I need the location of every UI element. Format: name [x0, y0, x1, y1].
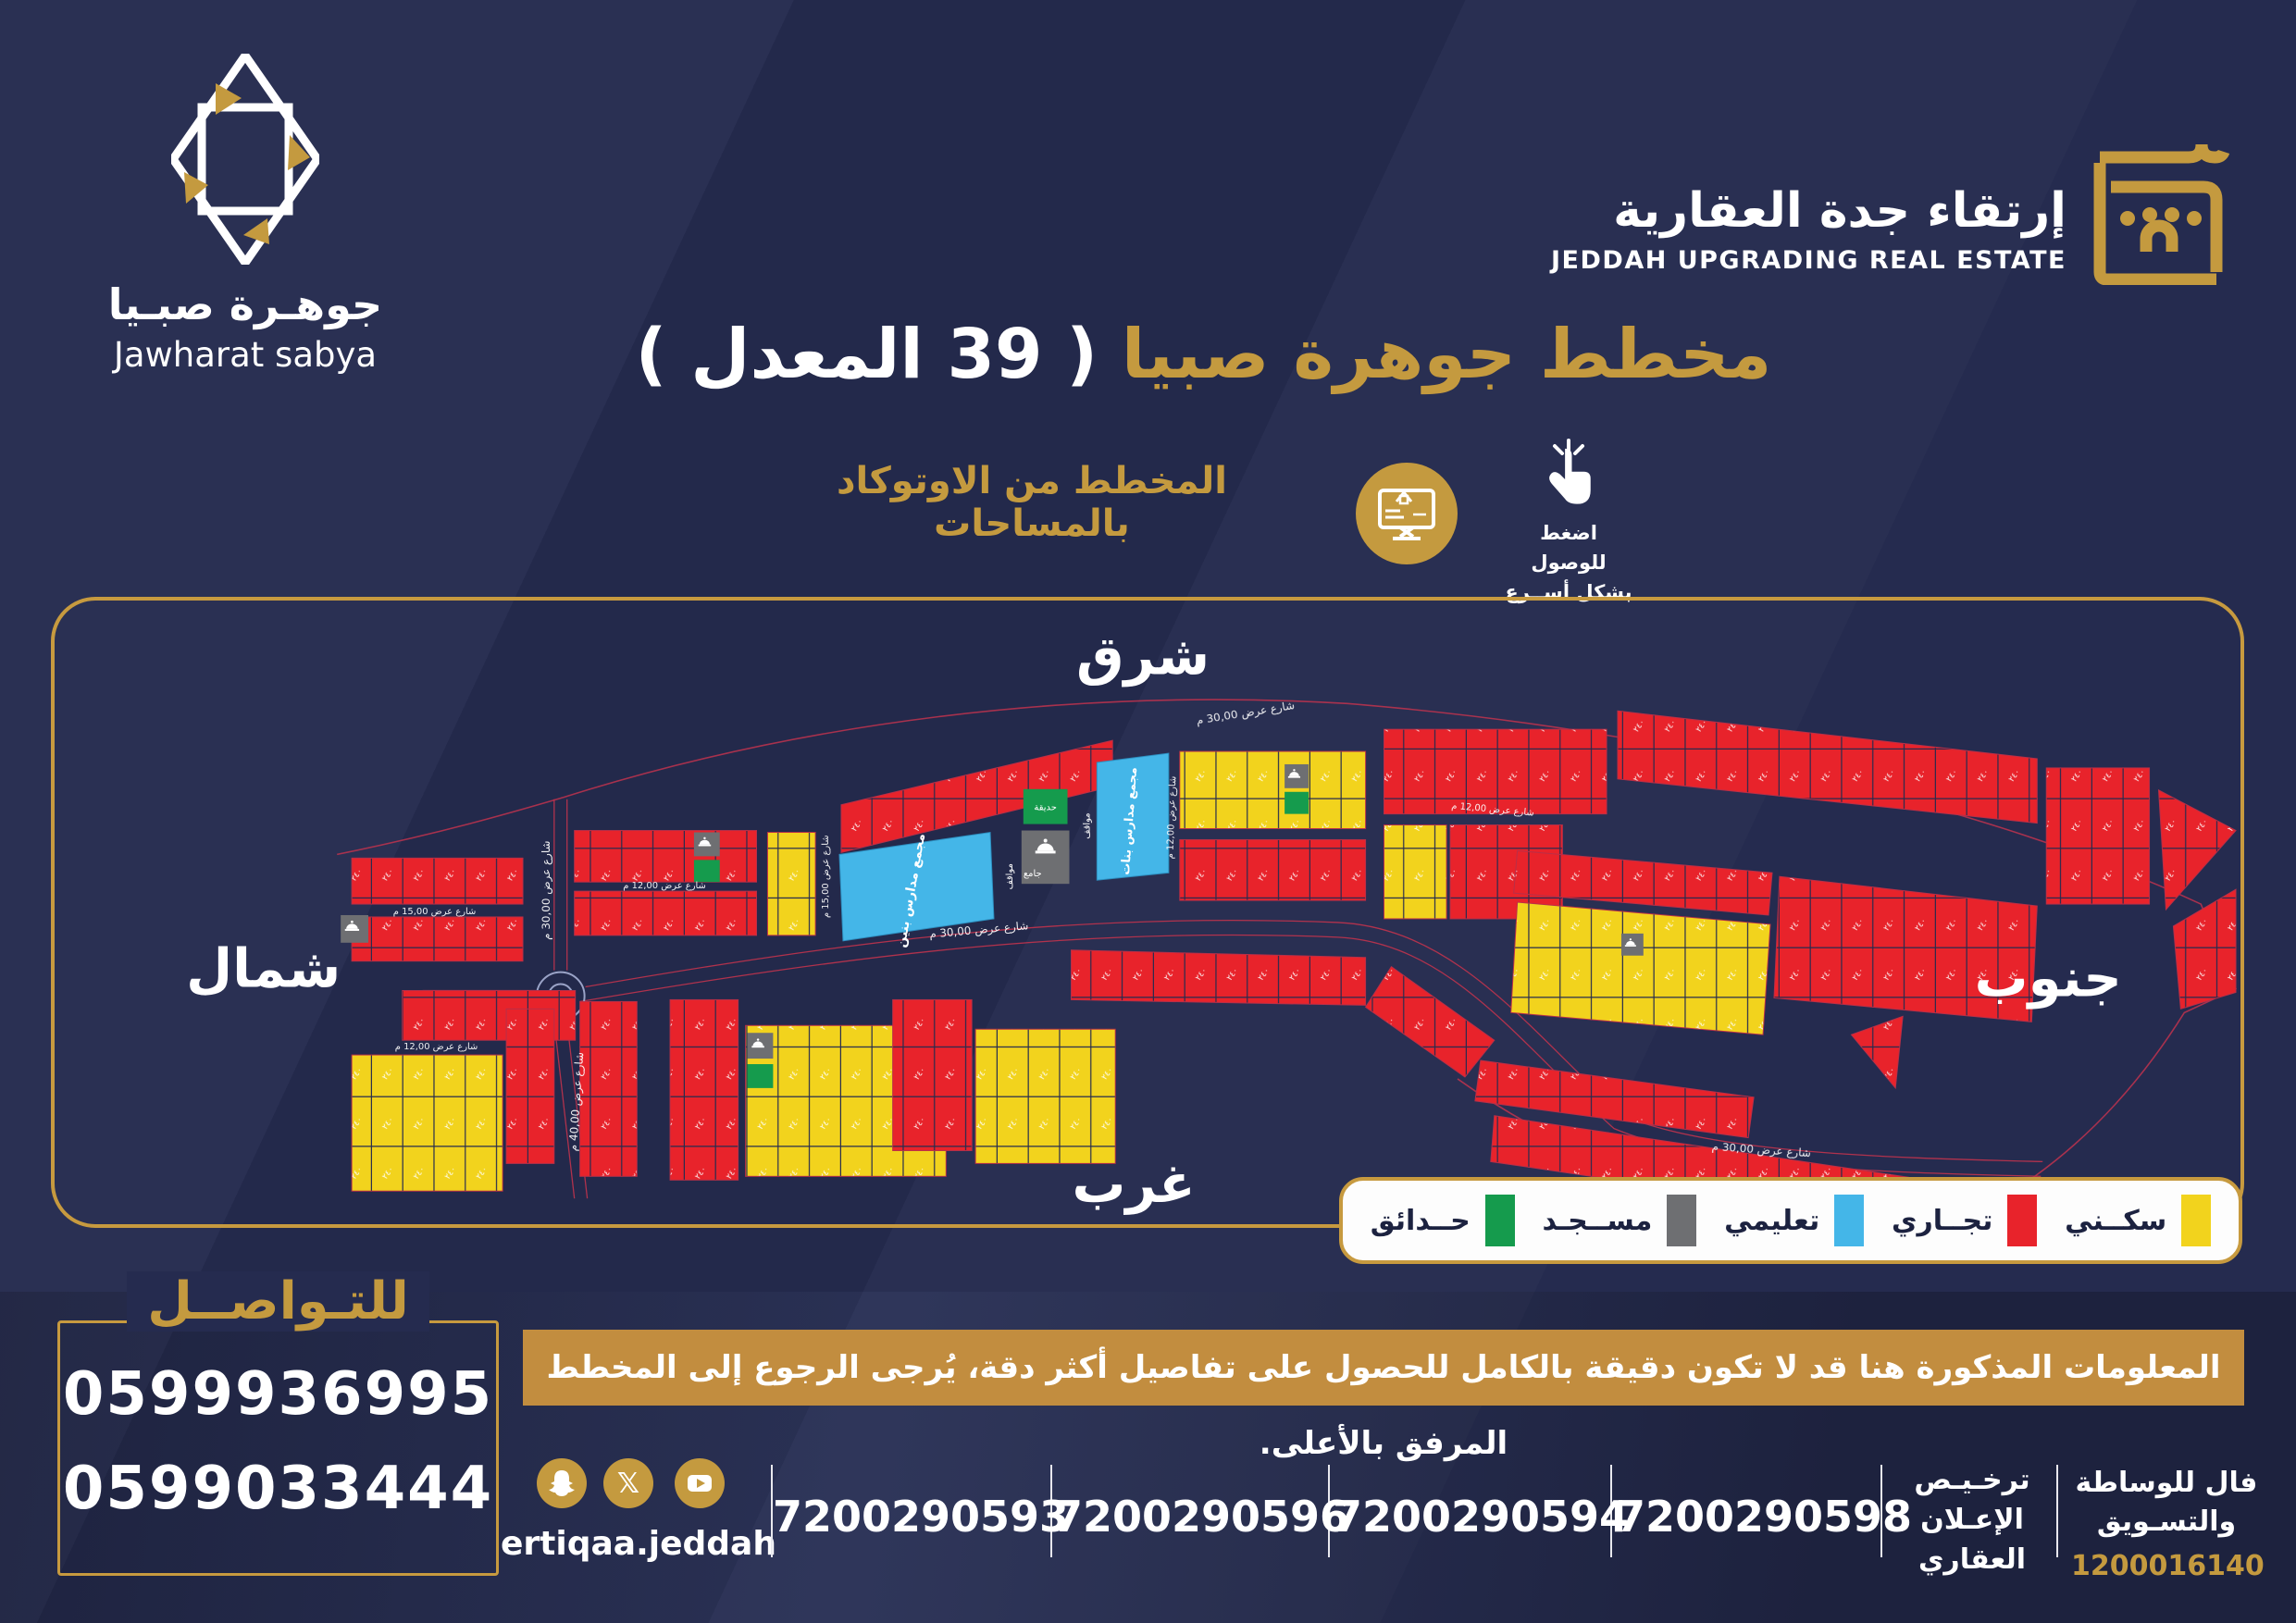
- page-subtitle: المخطط من الاوتوكاد بالمساحات: [754, 460, 1309, 545]
- agency-logo-icon: [2092, 130, 2231, 285]
- direction-north: شمال: [186, 937, 341, 1000]
- divider: [2056, 1465, 2058, 1557]
- svg-text:شارع عرض 30,00 م: شارع عرض 30,00 م: [1196, 699, 1296, 728]
- contact-title: للتـواصــل: [57, 1271, 499, 1332]
- fal-license-number: 1200016140: [2071, 1547, 2262, 1586]
- license-number-4: 7200290598: [1616, 1492, 1893, 1542]
- contact-box: [57, 1320, 499, 1576]
- park-label: حديقة: [1034, 803, 1056, 813]
- poster-canvas: جوهـرة صبـيا Jawharat sabya إرتقاء جدة ا…: [0, 0, 2296, 1623]
- agency-block: إرتقاء جدة العقارية JEDDAH UPGRADING REA…: [1551, 183, 2066, 275]
- x-twitter-icon[interactable]: 𝕏: [603, 1458, 653, 1508]
- legend-item-parks: حــدائق: [1371, 1195, 1515, 1246]
- legend-item-residential: سكــني: [2065, 1195, 2211, 1246]
- snapchat-icon[interactable]: [537, 1458, 587, 1508]
- map-legend: حــدائق مســجـد تعليمي تجــاري سكــني: [1339, 1177, 2242, 1264]
- commercial-swatch: [2007, 1195, 2037, 1246]
- direction-east: شرق: [1076, 625, 1210, 688]
- ad-license-label: ترخـيـص الإعـلان العقاري: [1893, 1460, 2051, 1580]
- license-number-3: 7200290594: [1333, 1492, 1610, 1542]
- youtube-icon[interactable]: [675, 1458, 725, 1508]
- page-title: مخطط جوهرة صبيا ( 39 المعدل ): [111, 315, 2296, 394]
- svg-text:شارع عرض 30,00 م: شارع عرض 30,00 م: [540, 840, 553, 939]
- agency-name-english: JEDDAH UPGRADING REAL ESTATE: [1551, 246, 2066, 275]
- svg-text:شارع عرض 12,00 م: شارع عرض 12,00 م: [1165, 776, 1178, 860]
- phone-number-2[interactable]: 0599033444: [57, 1455, 499, 1523]
- fal-license-block: فال للوساطة والتسـويق 1200016140: [2071, 1464, 2262, 1586]
- monitor-icon: [1376, 483, 1437, 544]
- direction-south: جنوب: [1975, 946, 2122, 1010]
- master-plan-map[interactable]: ٢٤٠ ٢٤٠: [51, 597, 2244, 1228]
- diamond-star-logo: [171, 54, 319, 265]
- page-title-main: مخطط جوهرة صبيا: [1122, 315, 1771, 394]
- parking-label: مواقف: [1005, 863, 1015, 889]
- svg-text:شارع عرض 12,00 م: شارع عرض 12,00 م: [395, 1042, 478, 1052]
- mosque-label: جامع: [1024, 869, 1042, 879]
- click-access-note[interactable]: اضغط للوصول بشكل أســرع: [1504, 437, 1633, 607]
- mosque-swatch: [1667, 1195, 1696, 1246]
- legend-item-commercial: تجــاري: [1892, 1195, 2037, 1246]
- svg-text:شارع عرض 15,00 م: شارع عرض 15,00 م: [393, 907, 477, 917]
- residential-swatch: [2181, 1195, 2211, 1246]
- phone-number-1[interactable]: 0599936995: [57, 1360, 499, 1429]
- autocad-monitor-badge[interactable]: [1356, 463, 1458, 564]
- legend-item-educational: تعليمي: [1724, 1195, 1864, 1246]
- disclaimer-bar: المعلومات المذكورة هنا قد لا تكون دقيقة …: [523, 1330, 2244, 1406]
- parking-label: مواقف: [1082, 812, 1092, 838]
- educational-swatch: [1834, 1195, 1864, 1246]
- click-note-line1: اضغط للوصول: [1504, 518, 1633, 577]
- license-number-2: 7200290596: [1053, 1492, 1331, 1542]
- hand-click-icon: [1534, 437, 1603, 514]
- agency-name-arabic: إرتقاء جدة العقارية: [1551, 183, 2066, 239]
- legend-item-mosque: مســجـد: [1543, 1195, 1697, 1246]
- svg-text:شارع عرض 15,00 م: شارع عرض 15,00 م: [821, 835, 831, 918]
- subdivision-plan-svg: ٢٤٠ ٢٤٠: [55, 601, 2240, 1224]
- svg-text:شارع عرض 12,00 م: شارع عرض 12,00 م: [623, 881, 706, 891]
- page-title-suffix: ( 39 المعدل ): [636, 315, 1098, 394]
- parks-swatch: [1485, 1195, 1515, 1246]
- direction-west: غرب: [1073, 1152, 1196, 1215]
- social-handle[interactable]: ertiqaa.jeddah: [500, 1525, 777, 1563]
- license-number-1: 7200290593: [773, 1492, 1050, 1542]
